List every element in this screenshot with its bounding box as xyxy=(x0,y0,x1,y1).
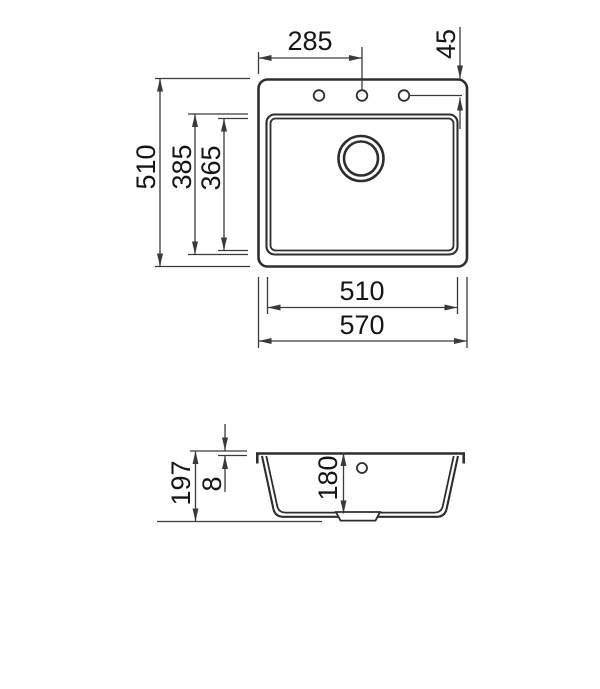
dim-label-510-depth: 510 xyxy=(131,144,161,189)
dim-rim-thickness: 8 xyxy=(197,424,247,492)
dim-label-8: 8 xyxy=(197,476,227,491)
dim-faucet-offset: 285 xyxy=(259,26,363,91)
side-view: 197 8 180 xyxy=(157,424,465,522)
sink-technical-drawing: 285 45 510 385 365 xyxy=(0,0,600,689)
dim-bowl-depth: 180 xyxy=(313,453,344,514)
faucet-hole-right xyxy=(399,90,410,101)
dim-label-45: 45 xyxy=(431,29,461,59)
bowl-wall-outer xyxy=(262,456,458,517)
overflow-hole xyxy=(357,463,367,473)
sink-drawing-canvas: 285 45 510 385 365 xyxy=(0,0,600,689)
bowl-inner-edge xyxy=(271,119,454,251)
dim-overall-height: 197 xyxy=(157,451,322,522)
dim-label-180: 180 xyxy=(313,455,343,500)
bowl-wall-inner xyxy=(266,456,453,513)
sink-outline-top xyxy=(259,80,468,267)
drain-recess xyxy=(336,512,380,521)
dim-label-510-width: 510 xyxy=(339,276,384,306)
dim-label-197: 197 xyxy=(166,460,196,505)
dim-label-285: 285 xyxy=(287,26,332,56)
dim-label-385: 385 xyxy=(167,144,197,189)
faucet-hole-left xyxy=(314,90,325,101)
dim-label-365: 365 xyxy=(196,145,226,190)
drain-inner-ring xyxy=(344,142,378,176)
faucet-hole-middle xyxy=(357,90,368,101)
dim-bowl-inner-depth: 365 xyxy=(196,119,248,251)
dim-label-570: 570 xyxy=(339,310,384,340)
top-view: 285 45 510 385 365 xyxy=(131,26,467,348)
dim-bowl-width: 510 xyxy=(268,276,458,314)
